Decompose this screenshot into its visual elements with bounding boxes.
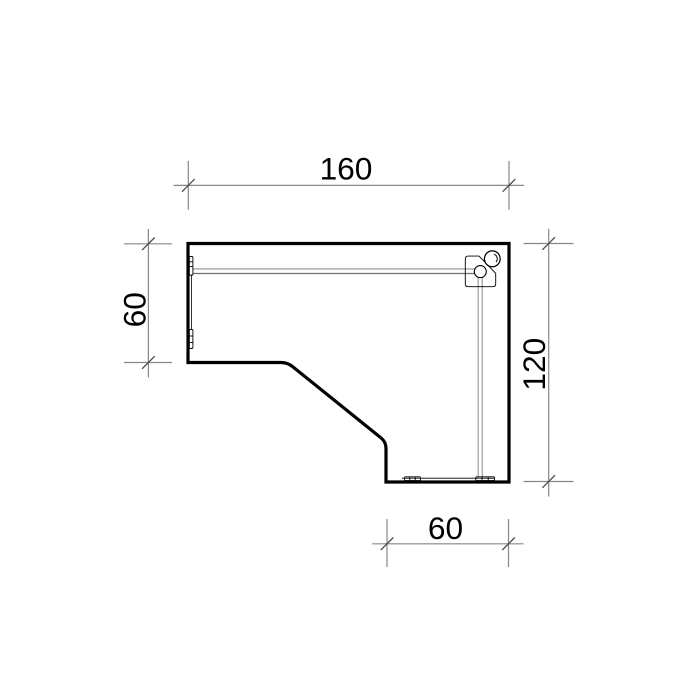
svg-text:160: 160: [320, 150, 373, 186]
svg-text:60: 60: [428, 510, 463, 546]
svg-text:60: 60: [117, 292, 153, 327]
svg-text:120: 120: [516, 338, 552, 391]
